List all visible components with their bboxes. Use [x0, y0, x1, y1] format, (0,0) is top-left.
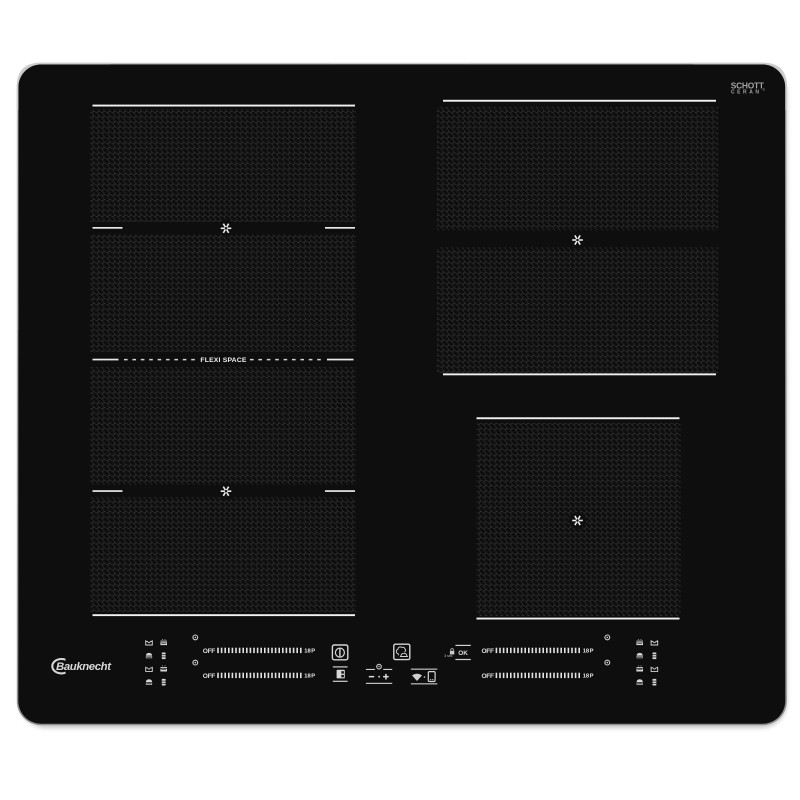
svg-text:P: P — [590, 674, 594, 680]
svg-text:OFF: OFF — [482, 673, 494, 680]
svg-text:3 sec: 3 sec — [444, 654, 452, 658]
svg-text:CERAN: CERAN — [731, 90, 762, 96]
svg-text:P: P — [311, 649, 315, 655]
svg-text:OFF: OFF — [203, 648, 215, 655]
svg-text:Bauknecht: Bauknecht — [56, 661, 112, 673]
svg-text:OFF: OFF — [203, 673, 215, 680]
svg-text:OFF: OFF — [482, 648, 494, 655]
svg-text:P: P — [311, 674, 315, 680]
svg-text:FLEXI SPACE: FLEXI SPACE — [200, 357, 247, 364]
svg-text:P: P — [590, 649, 594, 655]
svg-text:OK: OK — [458, 650, 468, 657]
